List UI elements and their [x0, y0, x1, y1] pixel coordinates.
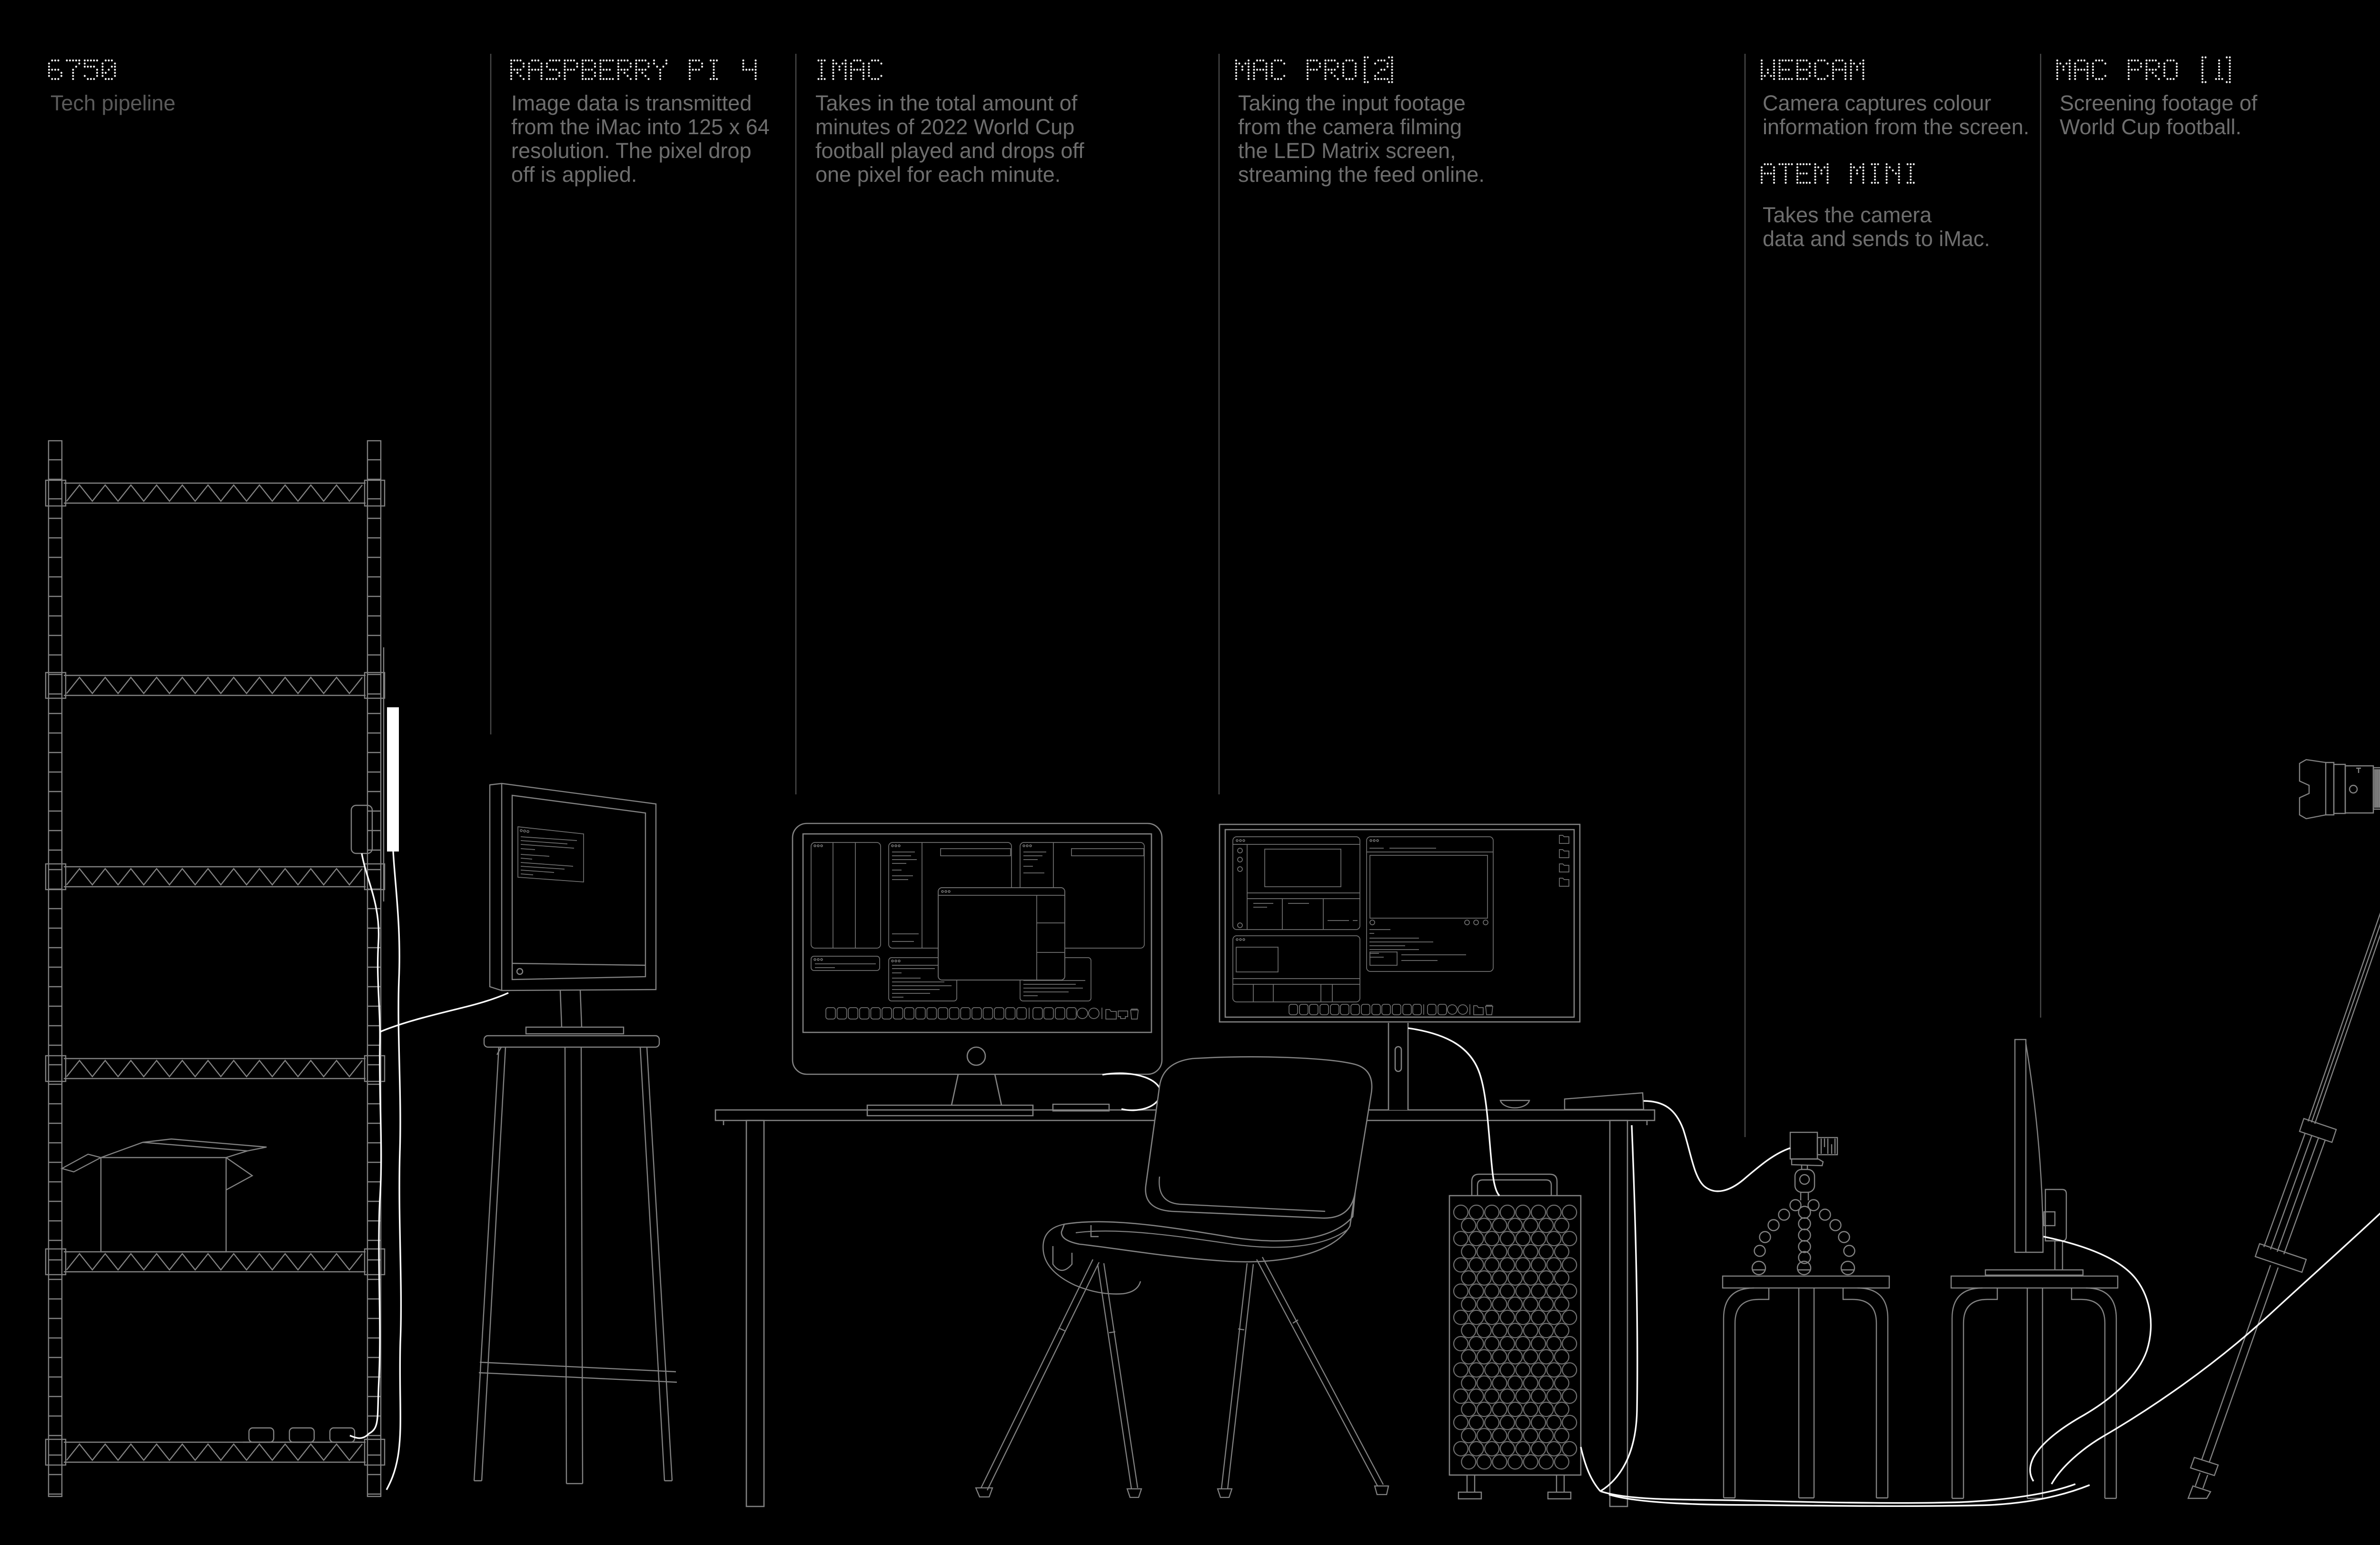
svg-text:off is applied.: off is applied.: [511, 162, 637, 187]
svg-text:World Cup football.: World Cup football.: [2060, 115, 2241, 139]
svg-text:Image data is transmitted: Image data is transmitted: [511, 91, 752, 115]
svg-text:Tech pipeline: Tech pipeline: [50, 91, 176, 115]
svg-text:Takes the camera: Takes the camera: [1763, 203, 1932, 227]
svg-text:resolution. The pixel drop: resolution. The pixel drop: [511, 139, 751, 163]
svg-text:Takes in the total amount of: Takes in the total amount of: [815, 91, 1078, 115]
svg-text:the LED Matrix screen,: the LED Matrix screen,: [1238, 139, 1456, 163]
svg-text:minutes of 2022 World Cup: minutes of 2022 World Cup: [815, 115, 1074, 139]
svg-text:from the iMac into 125 x 64: from the iMac into 125 x 64: [511, 115, 770, 139]
svg-text:football played and drops off: football played and drops off: [815, 139, 1084, 163]
svg-text:information from the screen.: information from the screen.: [1763, 115, 2029, 139]
svg-text:Screening footage of: Screening footage of: [2060, 91, 2258, 115]
svg-text:data and sends to iMac.: data and sends to iMac.: [1763, 227, 1990, 251]
svg-text:Camera captures colour: Camera captures colour: [1763, 91, 1991, 115]
svg-text:streaming the feed online.: streaming the feed online.: [1238, 162, 1485, 187]
svg-text:from the camera filming: from the camera filming: [1238, 115, 1462, 139]
svg-text:Taking the input footage: Taking the input footage: [1238, 91, 1466, 115]
svg-text:one pixel for each minute.: one pixel for each minute.: [815, 162, 1061, 187]
